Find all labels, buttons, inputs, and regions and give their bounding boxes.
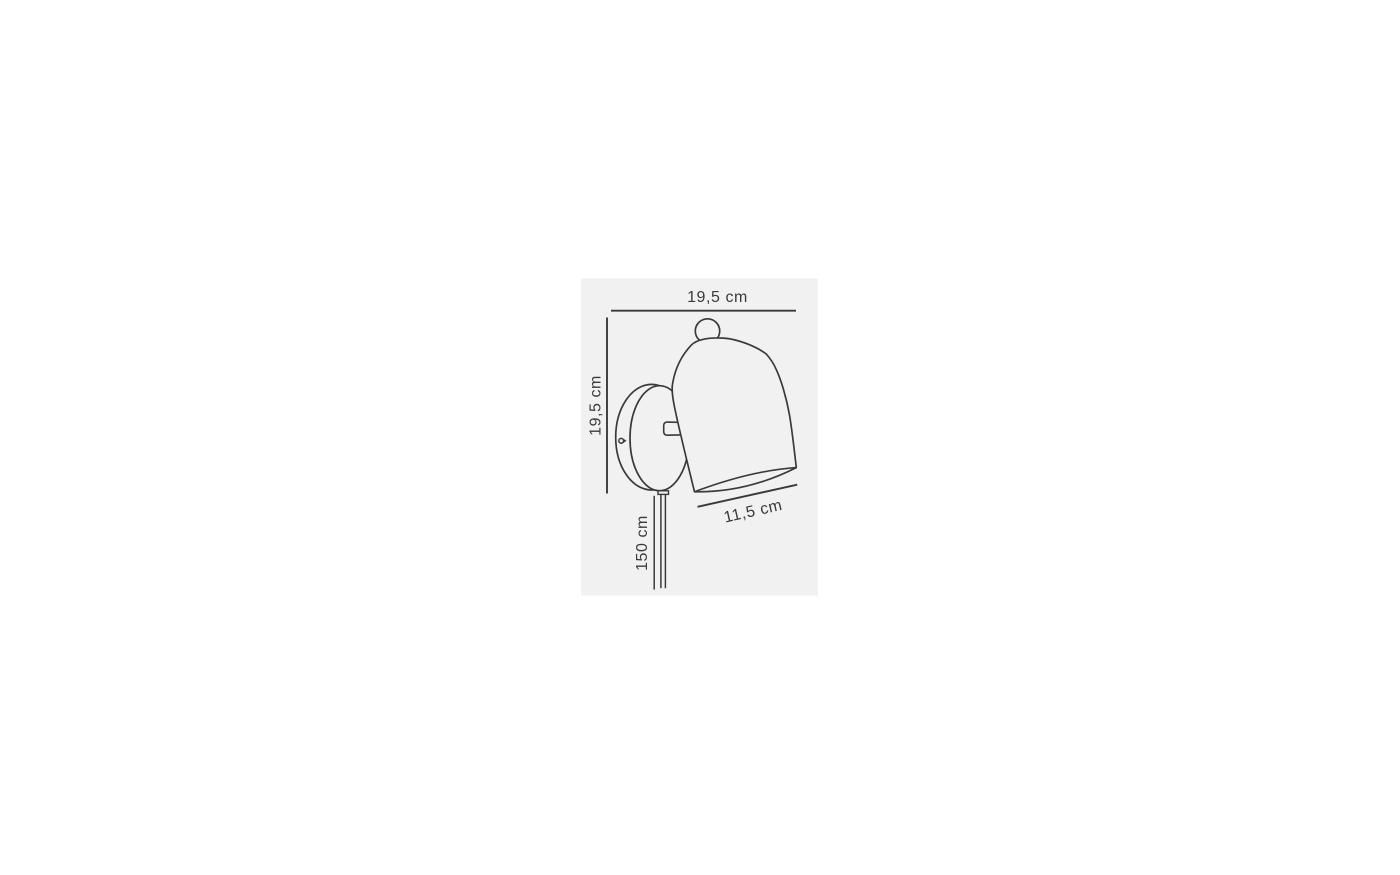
svg-text:19,5 cm: 19,5 cm [588,375,605,436]
svg-text:150 cm: 150 cm [634,515,651,571]
svg-text:19,5 cm: 19,5 cm [687,289,748,306]
